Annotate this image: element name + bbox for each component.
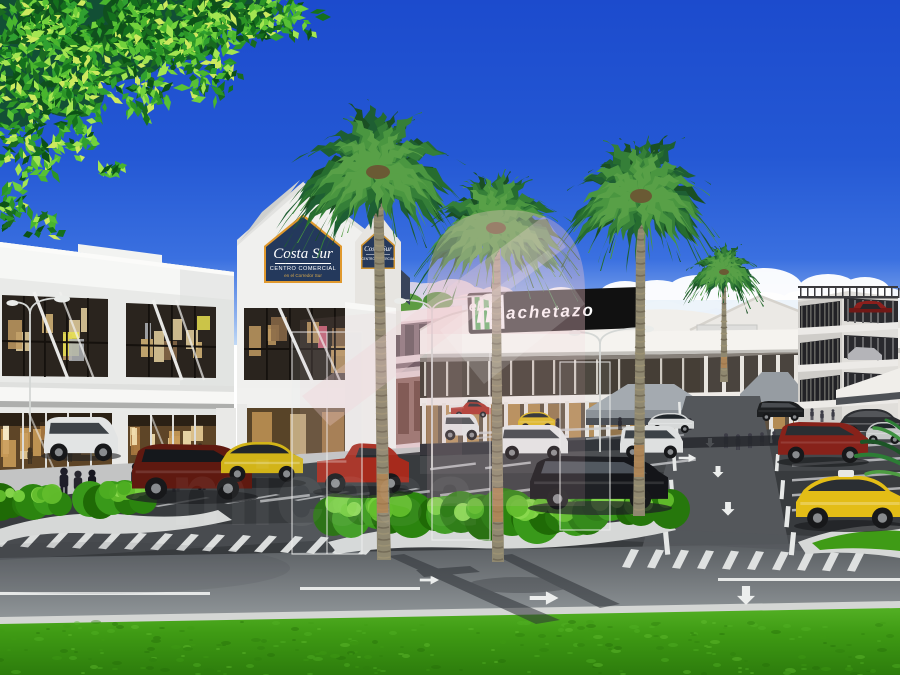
svg-text:CENTRO COMERCIAL: CENTRO COMERCIAL <box>270 266 336 272</box>
svg-text:Costa Sur: Costa Sur <box>273 246 333 262</box>
svg-text:en el Corredor Sur: en el Corredor Sur <box>284 273 322 278</box>
svg-text:micasa: micasa <box>170 445 476 545</box>
